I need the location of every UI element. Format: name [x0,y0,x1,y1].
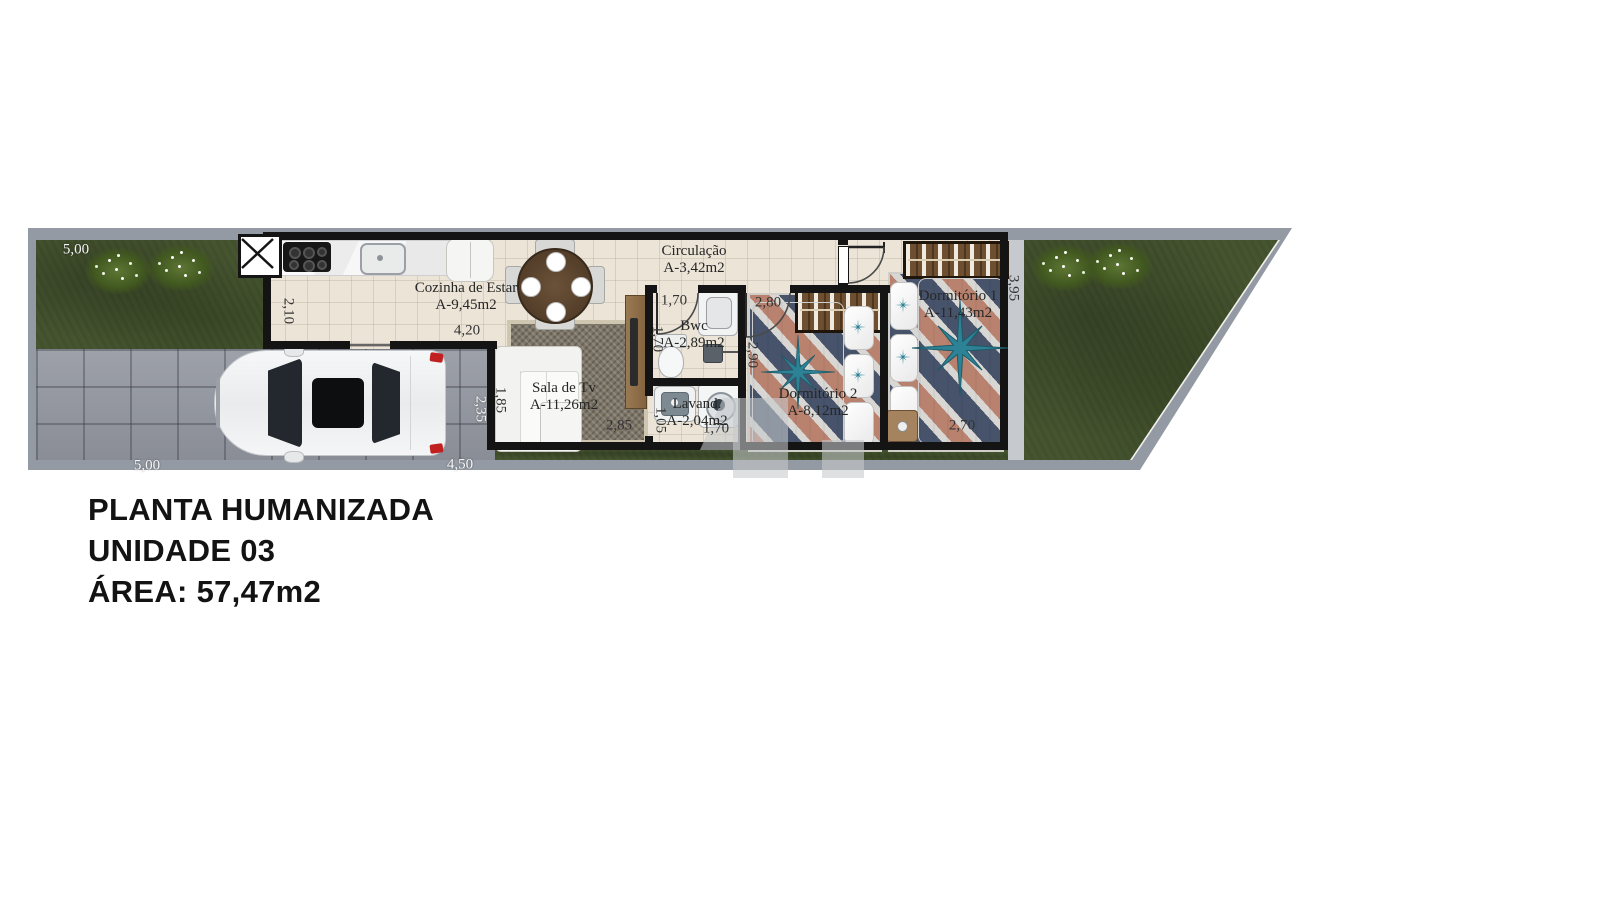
pillow [890,334,918,382]
dimension-label: 3,95 [1005,275,1022,301]
sofa-cushion-seam [520,371,521,449]
room-name: Circulação [662,243,727,260]
wall-dorm-divider [880,287,888,450]
room-name: Dormitório 1 [919,288,998,305]
room-area: A-2,89m2 [663,335,724,352]
room-label-dormitorio2: Dormitório 2 A-8,12m2 [779,386,858,420]
car-trunk-seam [410,356,411,450]
dimension-label: 2,70 [949,418,975,435]
wall-bwc-lavand-divider [645,378,746,386]
kitchen-sink [360,243,406,275]
plan-title: PLANTA HUMANIZADA [88,489,434,530]
knob [897,421,908,432]
watermark-shape [822,440,864,478]
room-name: Dormitório 2 [779,386,858,403]
room-name: Lavand. [666,396,727,413]
burner [289,247,301,259]
dimension-label: 5,00 [134,458,160,475]
shrub-plant [1086,243,1152,289]
burner [303,260,315,272]
wall-kitchen-front [390,341,497,349]
burner [317,247,327,257]
side-walkway [1008,240,1024,460]
room-name: Bwc [663,318,724,335]
wall-bwc-left [645,436,653,450]
dimension-label: 1,70 [703,421,729,438]
fridge-door-seam [470,242,471,278]
room-area: A-9,45m2 [415,297,517,314]
area-total: ÁREA: 57,47m2 [88,571,434,612]
fridge [446,238,494,282]
nightstand [886,410,918,442]
dorm1-door-leaf [838,246,849,284]
dimension-label: 2,85 [606,418,632,435]
dimension-label: 4,50 [447,457,473,474]
faucet [377,255,383,261]
room-area: A-11,26m2 [530,397,598,414]
wall-right [1000,232,1008,450]
burner [317,260,327,270]
wall-circulation [645,285,657,293]
room-label-bwc: Bwc A-2,89m2 [663,318,724,352]
car-windshield [268,358,302,448]
dining-table [517,248,593,324]
wardrobe-dorm1 [903,241,1009,279]
car-taillight [429,352,443,363]
unit-number: UNIDADE 03 [88,530,434,571]
wall-dorm1-door-jamb [838,232,848,245]
cooktop [283,242,331,272]
tv-rack [625,295,647,409]
room-name: Cozinha de Estar [415,280,517,297]
dimension-label: 1,05 [652,407,669,433]
title-block: PLANTA HUMANIZADA UNIDADE 03 ÁREA: 57,47… [88,489,434,612]
dimension-label: 1,85 [492,387,509,413]
wall-top [263,232,1008,240]
floor-plan-canvas: Cozinha de Estar A-9,45m2 Circulação A-3… [0,0,1600,900]
room-label-cozinha: Cozinha de Estar A-9,45m2 [415,280,517,314]
room-area: A-8,12m2 [779,403,858,420]
car-front-grille [216,378,220,428]
dimension-label: 2,80 [755,295,781,312]
car [214,350,446,456]
pillow [890,282,918,330]
dimension-label: 2,10 [280,298,297,324]
pillow [844,306,874,350]
dimension-label: 2,90 [744,342,761,368]
room-label-circulacao: Circulação A-3,42m2 [662,243,727,277]
plate [521,277,541,297]
dimension-label: 1,70 [649,326,666,352]
car-rear-glass [372,362,400,444]
plate [546,302,566,322]
room-area: A-3,42m2 [662,260,727,277]
dimension-label: 4,20 [454,323,480,340]
room-label-sala: Sala de Tv A-11,26m2 [530,380,598,414]
car-mirror [284,451,304,463]
shrub-plant [148,245,214,291]
tv [630,318,638,386]
dimension-label: 1,70 [661,293,687,310]
plate [546,252,566,272]
car-taillight [429,443,443,454]
car-sunroof [312,378,364,428]
plate [571,277,591,297]
burner [289,260,299,270]
kitchen-window [238,234,282,278]
room-name: Sala de Tv [530,380,598,397]
wall-kitchen-front [263,341,350,349]
shrub-plant [85,248,151,294]
dimension-label: 5,00 [63,242,89,259]
room-area: A-11,43m2 [919,305,998,322]
room-label-dormitorio1: Dormitório 1 A-11,43m2 [919,288,998,322]
dimension-label: 2,35 [472,396,489,422]
burner [303,247,315,259]
